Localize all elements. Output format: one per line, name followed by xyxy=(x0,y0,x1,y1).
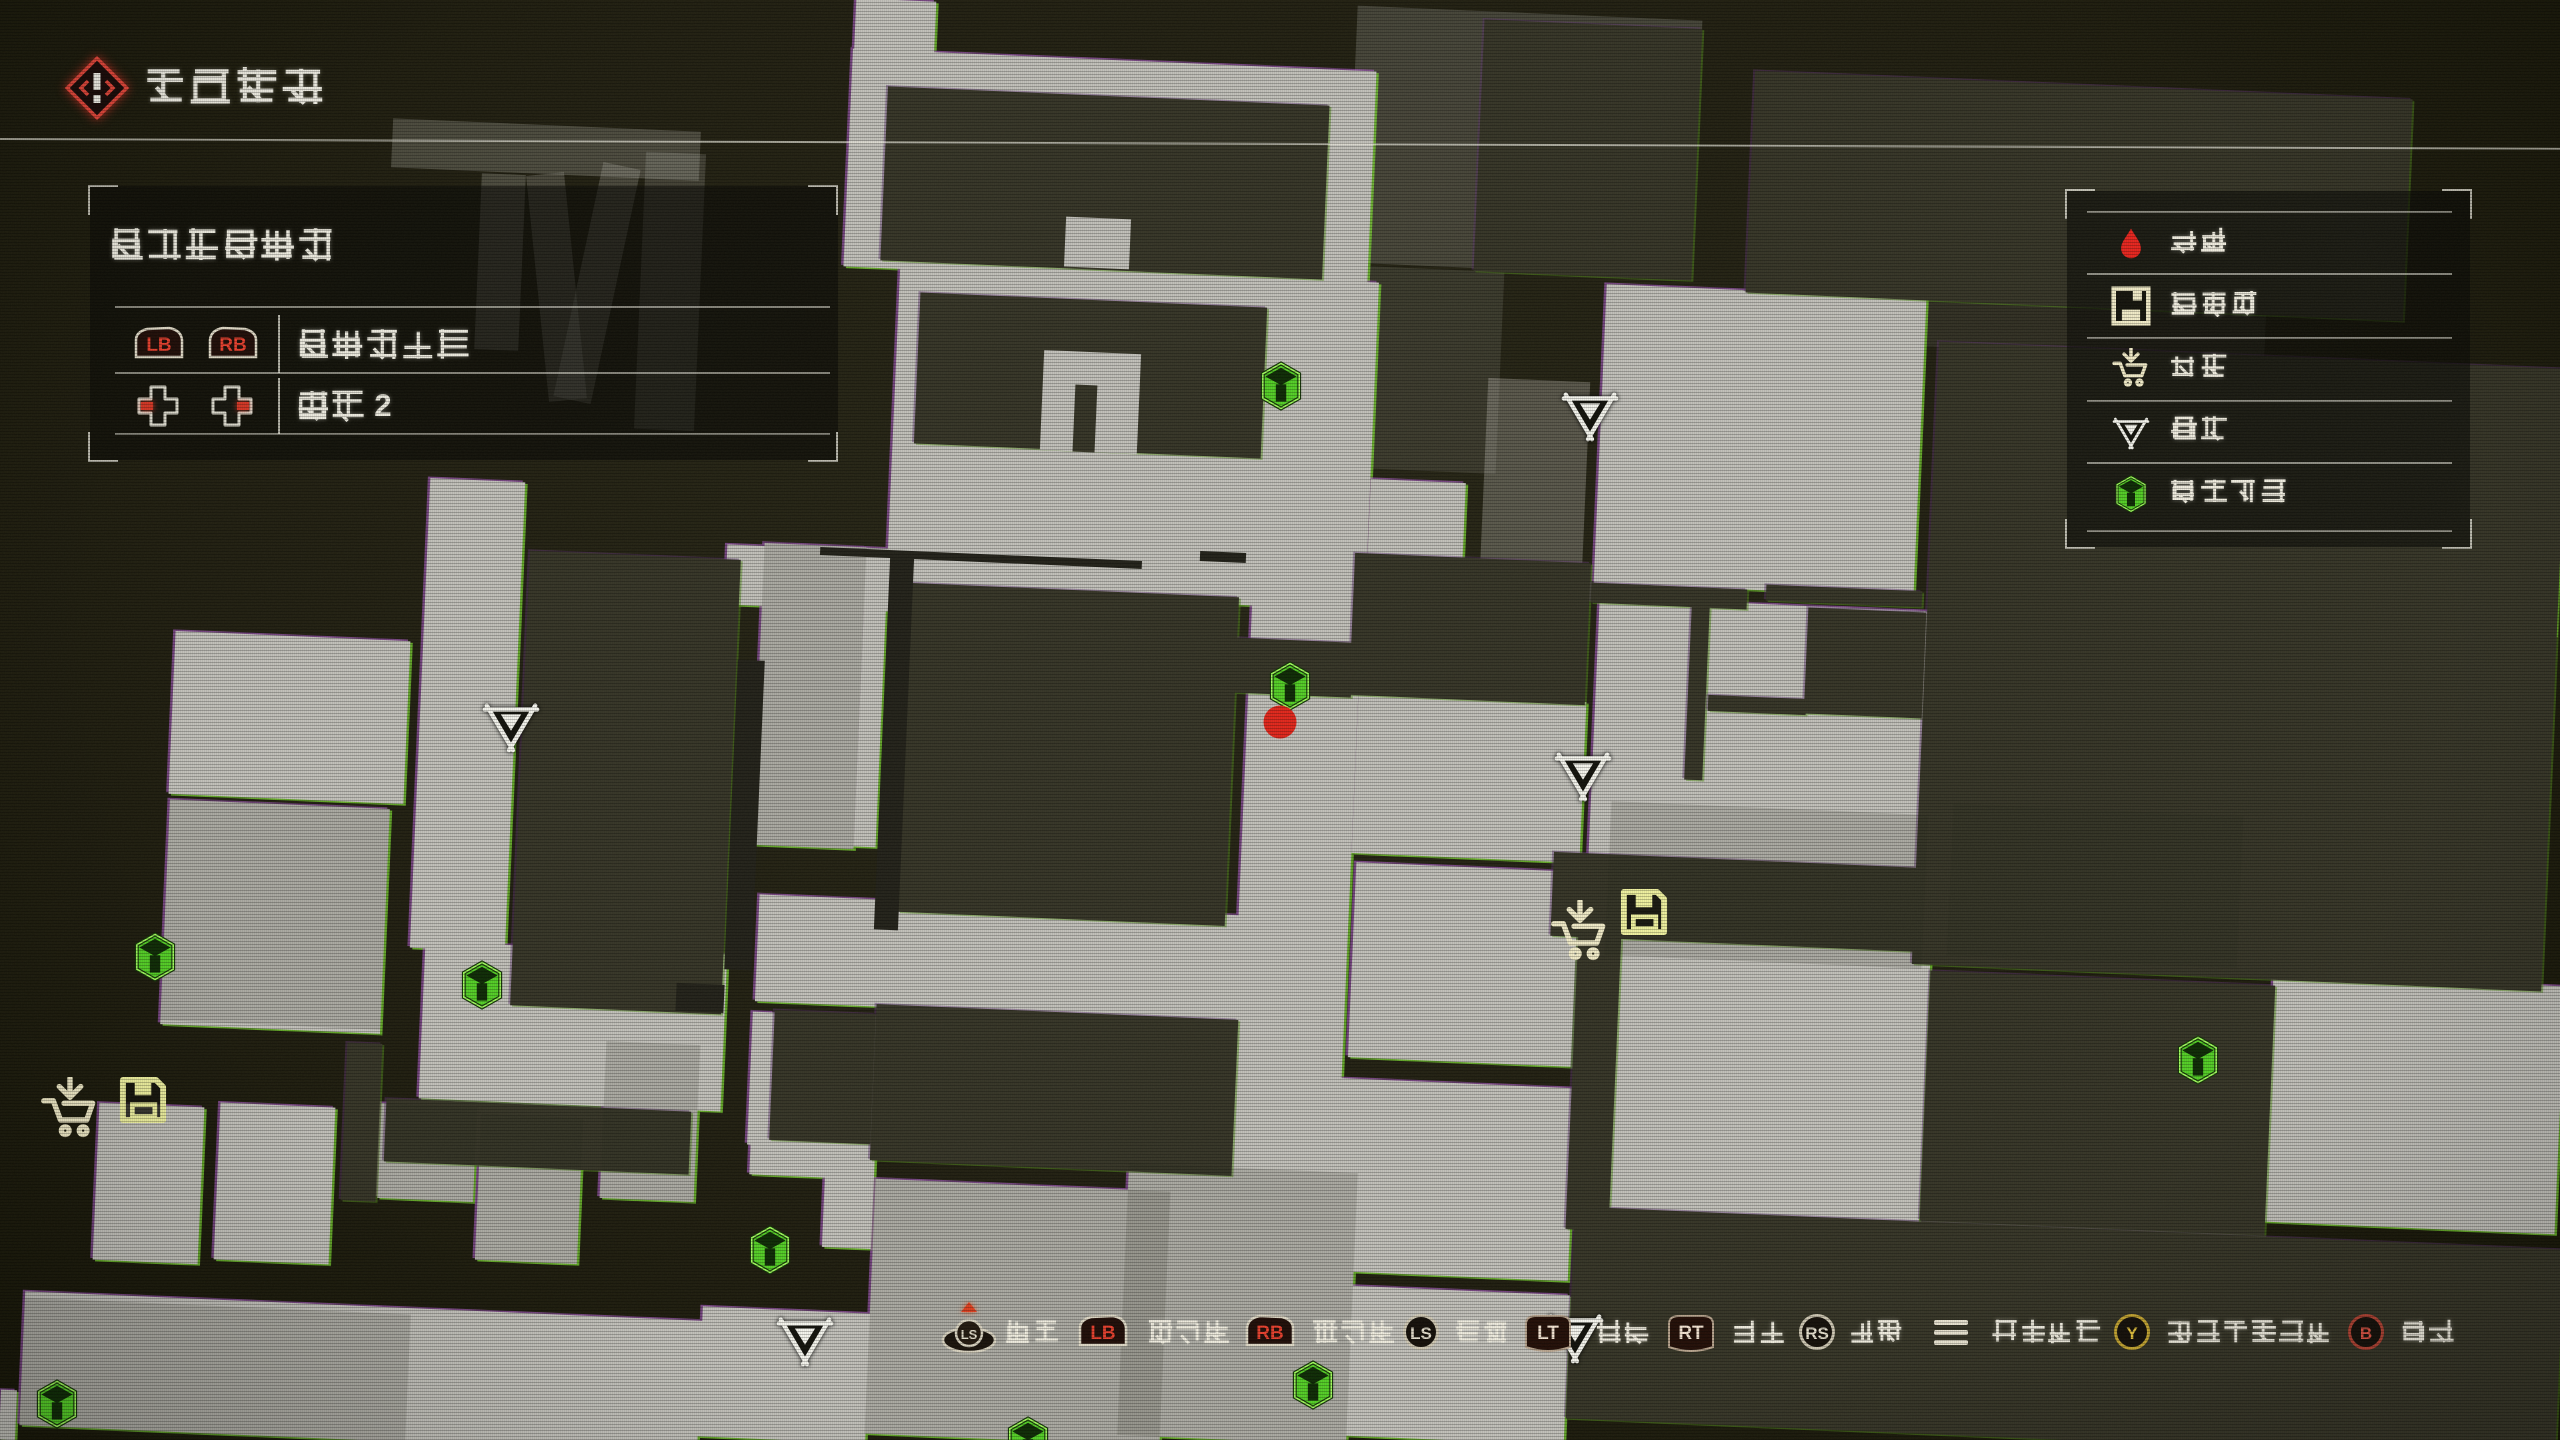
svg-text:LT: LT xyxy=(1537,1323,1559,1344)
svg-text:RS: RS xyxy=(1805,1324,1829,1343)
svg-text:B: B xyxy=(2360,1324,2372,1343)
svg-text:RB: RB xyxy=(219,335,246,356)
svg-text:LB: LB xyxy=(1090,1323,1115,1344)
svg-text:LS: LS xyxy=(961,1327,978,1342)
svg-text:RB: RB xyxy=(1256,1323,1283,1344)
svg-text:LS: LS xyxy=(1410,1324,1432,1343)
svg-text:RT: RT xyxy=(1678,1323,1704,1344)
svg-text:2: 2 xyxy=(374,388,391,422)
svg-text:LB: LB xyxy=(146,335,171,356)
svg-text:Y: Y xyxy=(2126,1324,2138,1343)
